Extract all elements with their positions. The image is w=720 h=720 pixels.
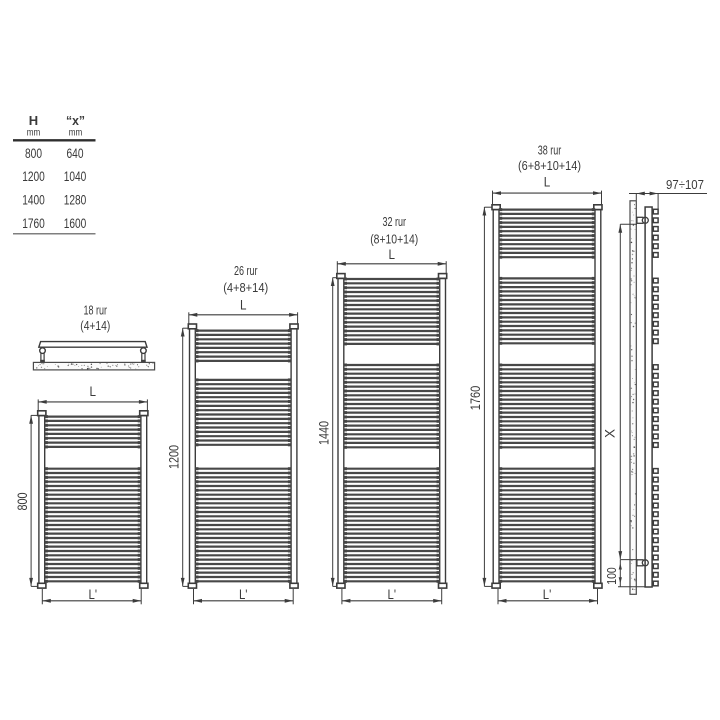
svg-text:1400: 1400 xyxy=(22,193,45,208)
svg-text:1280: 1280 xyxy=(64,193,87,208)
svg-text:1760: 1760 xyxy=(468,386,483,411)
svg-text:97÷107: 97÷107 xyxy=(666,178,704,192)
svg-text:1440: 1440 xyxy=(317,421,332,445)
svg-text:L': L' xyxy=(239,586,248,602)
svg-text:(4+8+14): (4+8+14) xyxy=(223,280,268,295)
svg-text:18 rur: 18 rur xyxy=(84,303,108,318)
svg-text:L: L xyxy=(240,297,247,313)
svg-text:L: L xyxy=(389,246,396,262)
svg-text:1040: 1040 xyxy=(64,169,87,184)
svg-text:38 rur: 38 rur xyxy=(538,143,562,158)
svg-text:(4+14): (4+14) xyxy=(80,318,110,333)
svg-text:800: 800 xyxy=(25,146,42,161)
svg-text:640: 640 xyxy=(67,146,84,161)
svg-text:1200: 1200 xyxy=(167,445,182,469)
svg-text:(8+10+14): (8+10+14) xyxy=(370,231,418,246)
svg-text:1600: 1600 xyxy=(64,216,87,231)
svg-text:L': L' xyxy=(89,586,98,602)
svg-text:1760: 1760 xyxy=(22,216,45,231)
svg-text:mm: mm xyxy=(27,127,41,139)
svg-text:L: L xyxy=(90,383,97,399)
svg-text:L': L' xyxy=(543,586,552,602)
svg-text:100: 100 xyxy=(605,567,619,585)
svg-text:(6+8+10+14): (6+8+10+14) xyxy=(518,158,581,173)
svg-text:1200: 1200 xyxy=(22,169,45,184)
svg-text:L: L xyxy=(544,174,551,190)
svg-text:mm: mm xyxy=(69,127,83,139)
svg-text:L': L' xyxy=(388,586,397,602)
svg-text:32 rur: 32 rur xyxy=(382,214,406,229)
svg-text:800: 800 xyxy=(15,493,30,511)
svg-text:26 rur: 26 rur xyxy=(234,263,258,278)
svg-text:X: X xyxy=(603,429,618,438)
